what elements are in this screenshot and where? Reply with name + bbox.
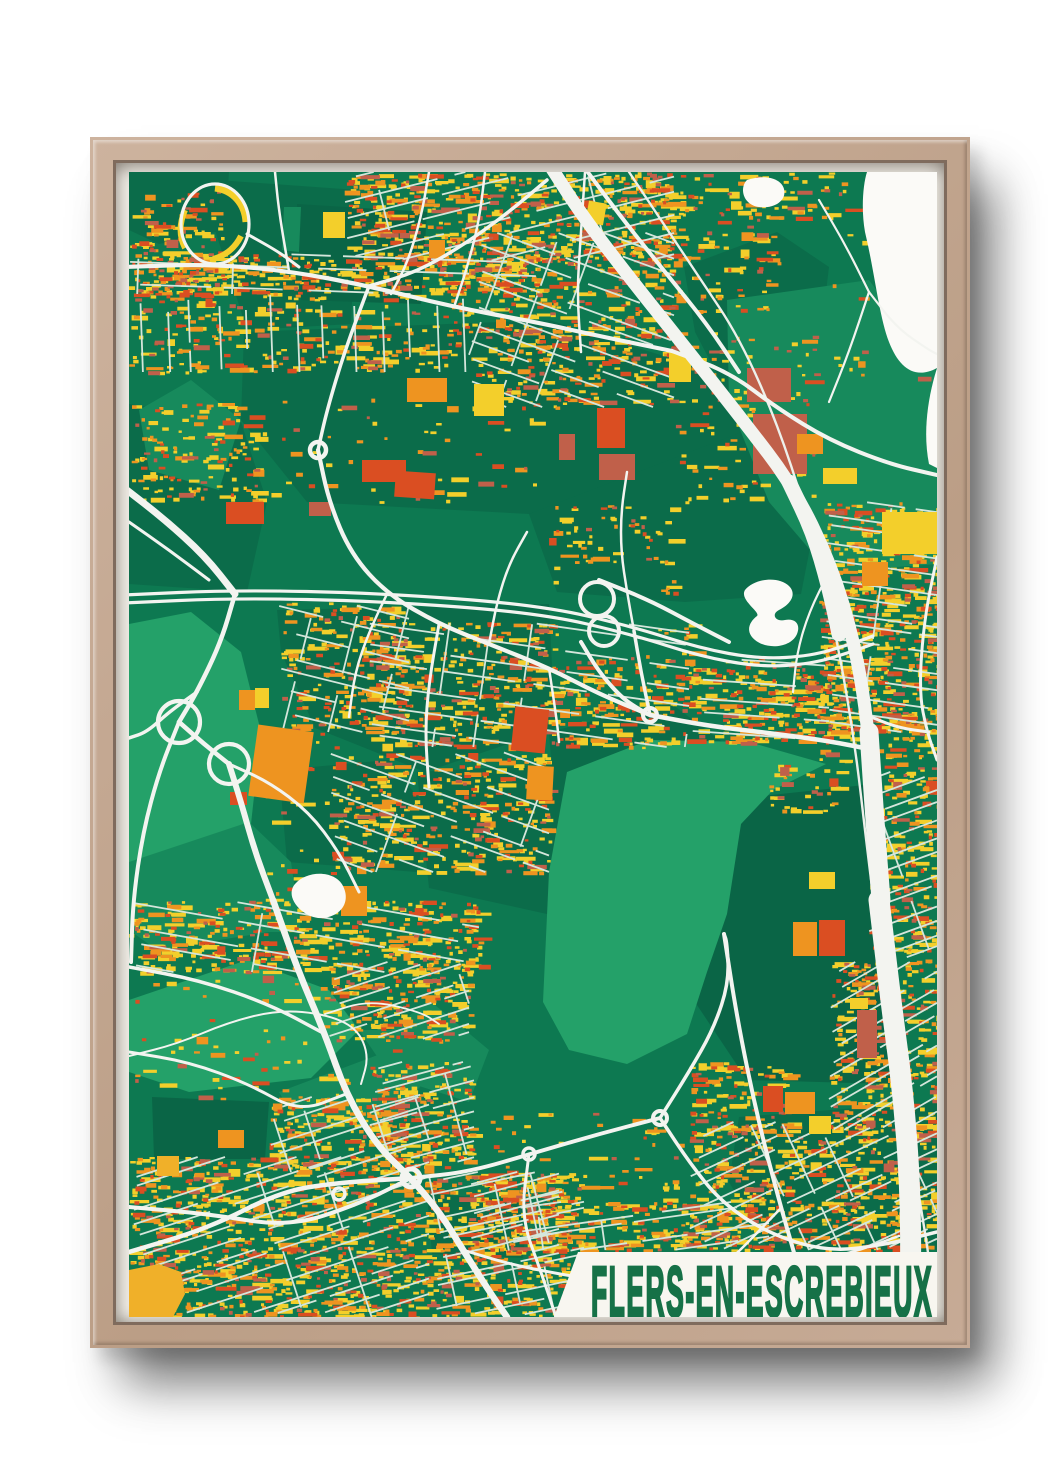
svg-text:FLERS-EN-ESCREBIEUX: FLERS-EN-ESCREBIEUX (591, 1253, 933, 1317)
